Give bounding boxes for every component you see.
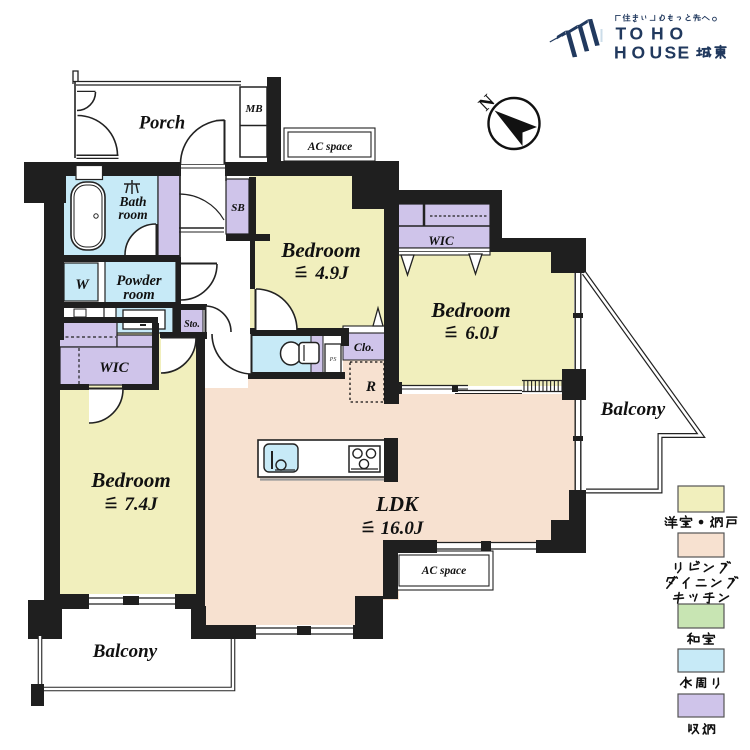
svg-text:room: room [118, 207, 147, 222]
svg-text:O: O [630, 24, 644, 44]
svg-text:WIC: WIC [99, 360, 129, 376]
svg-text:H: H [651, 24, 664, 44]
svg-text:E: E [678, 43, 690, 63]
svg-text:16.0J: 16.0J [381, 518, 424, 539]
svg-text:Sto.: Sto. [184, 319, 200, 330]
svg-text:Balcony: Balcony [92, 641, 158, 662]
svg-text:U: U [650, 43, 663, 63]
svg-text:LDK: LDK [375, 492, 420, 516]
svg-text:Clo.: Clo. [354, 340, 374, 354]
svg-text:Bedroom: Bedroom [280, 238, 360, 262]
svg-text:Bedroom: Bedroom [430, 298, 510, 322]
svg-text:PS: PS [329, 357, 337, 363]
svg-text:R: R [365, 379, 376, 395]
svg-text:Bedroom: Bedroom [90, 468, 170, 492]
svg-text:Balcony: Balcony [600, 399, 666, 420]
svg-text:4.9J: 4.9J [314, 263, 349, 284]
svg-text:AC space: AC space [307, 141, 352, 153]
svg-text:AC space: AC space [421, 565, 466, 577]
svg-text:T: T [616, 24, 627, 44]
svg-text:H: H [614, 43, 627, 63]
svg-text:MB: MB [244, 103, 262, 115]
svg-text:O: O [632, 43, 646, 63]
svg-text:7.4J: 7.4J [124, 494, 158, 515]
svg-text:6.0J: 6.0J [465, 323, 499, 344]
svg-text:O: O [670, 24, 684, 44]
svg-text:W: W [75, 277, 90, 293]
svg-text:WIC: WIC [428, 233, 454, 248]
svg-text:room: room [123, 287, 154, 303]
svg-text:SB: SB [231, 202, 244, 214]
svg-text:Porch: Porch [138, 114, 185, 134]
svg-text:S: S [665, 43, 677, 63]
